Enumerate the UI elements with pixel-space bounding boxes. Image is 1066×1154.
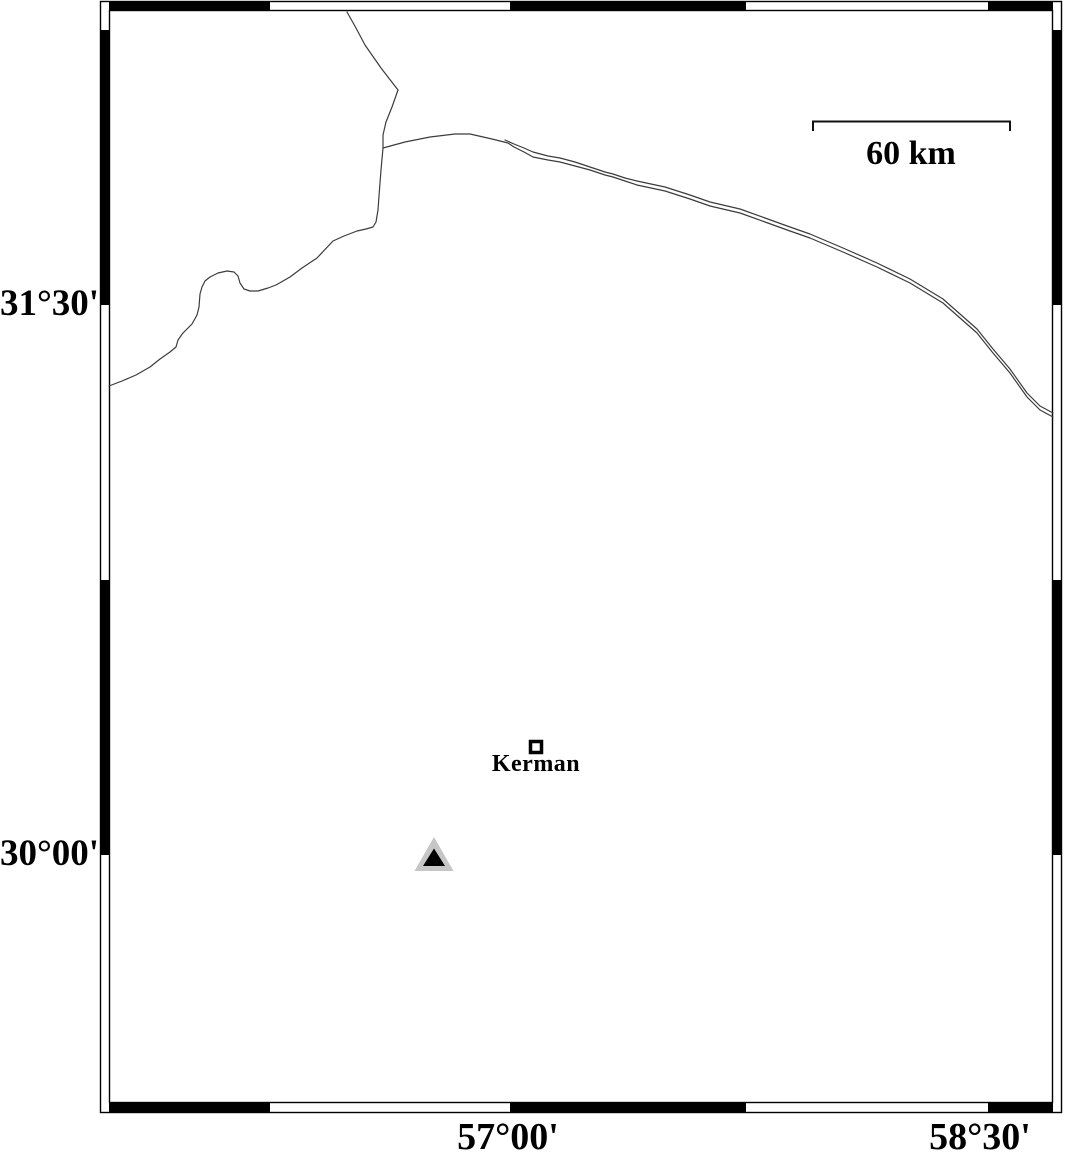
frame-segment <box>109 1103 270 1113</box>
lon-tick-label-57-00: 57°00' <box>358 1117 658 1154</box>
line-main-curve <box>383 134 1053 417</box>
line-main-curve-parallel <box>505 140 1053 413</box>
frame-segment <box>510 1103 746 1113</box>
scale-bar <box>813 122 1010 132</box>
frame-segment <box>510 2 746 11</box>
frame-segment <box>988 2 1053 11</box>
frame-segment <box>101 30 110 305</box>
scale-bar-bracket <box>813 122 1010 132</box>
line-west-branch <box>109 148 383 386</box>
lon-tick-label-58-30: 58°30' <box>830 1117 1066 1154</box>
lat-tick-label-31-30: 31°30' <box>0 284 92 325</box>
map-lines <box>109 12 1053 417</box>
frame-inner-outline <box>110 11 1053 1103</box>
line-north-branch <box>347 12 398 148</box>
map-figure: 31°30' 30°00' 57°00' 58°30' 60 km Kerman <box>0 0 1066 1154</box>
lat-tick-label-30-00: 30°00' <box>0 834 92 875</box>
station-marker <box>415 837 454 871</box>
frame-segment <box>988 1103 1053 1113</box>
map-canvas <box>0 0 1066 1154</box>
frame-segment <box>1053 580 1062 855</box>
frame-segment <box>101 580 110 855</box>
city-label: Kerman <box>386 751 686 777</box>
scale-bar-label: 60 km <box>761 135 1061 172</box>
frame-segment <box>109 2 270 11</box>
